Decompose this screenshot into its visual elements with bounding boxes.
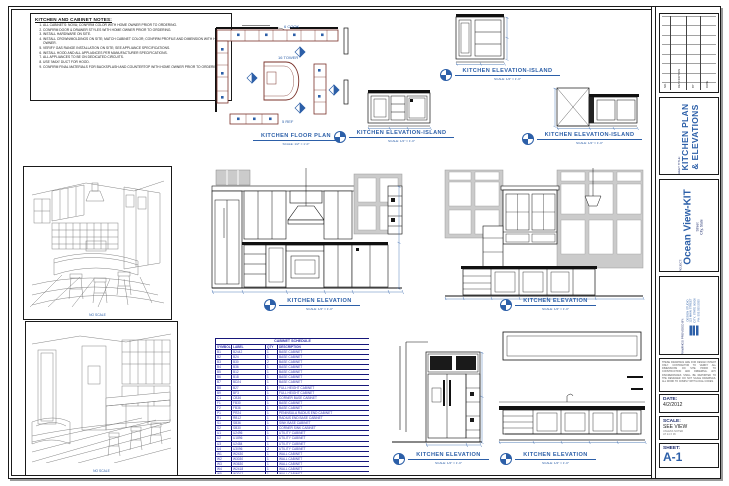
perspective-1-label: NO SCALE: [24, 313, 171, 317]
kitchen-notes-block: KITCHEN AND CABINET NOTES: ALL CABINETS:…: [30, 13, 232, 101]
firm-contact-line: PH: 555.555.5555: [697, 298, 701, 323]
notes-title: KITCHEN AND CABINET NOTES:: [35, 17, 227, 22]
schedule-col-symbol: SYMBOL: [216, 344, 232, 349]
date-value: 4/2/2012: [663, 402, 715, 408]
kitchen-elevation-bot-left-title-text: KITCHEN ELEVATION: [408, 452, 488, 460]
kitchen-floor-plan-drawing: 6 COOK 16 TOWER 5 REF: [212, 12, 372, 130]
island-elevation-right-drawing: [553, 84, 643, 130]
firm-contact-lines: DESIGN STUDIO123 MAIN STREETCITY, STATE …: [686, 298, 701, 323]
section-marker-icon: [393, 453, 405, 465]
note-item: CONFIRM DOOR & DRAWER STYLES WITH HOME O…: [43, 28, 227, 32]
sheet-title-box: SHEET TITLE: KITCHEN PLAN & ELEVATIONS: [659, 97, 719, 175]
kitchen-elevation-mid-left-title-text: KITCHEN ELEVATION: [279, 298, 359, 306]
schedule-body: B1 B2442 1 BASE CABINET B2 B24 1 BASE CA…: [216, 349, 370, 474]
sheet-number-box: SHEET: A-1: [659, 443, 719, 468]
island-elevation-left-title-text: KITCHEN ELEVATION-ISLAND: [349, 130, 455, 138]
scale-box: SCALE: SEE VIEW UNLESS NOTED AT 24 X 36: [659, 416, 719, 440]
plan-label-tower: 16 TOWER: [278, 55, 298, 60]
revision-table: NO.DESCRIPTIONBYDATE: [659, 13, 719, 93]
note-item: ALL CABINETS: NOVA; CONFIRM COLOR WITH H…: [43, 23, 227, 27]
island-elevation-right-title-text: KITCHEN ELEVATION-ISLAND: [537, 132, 643, 140]
kitchen-elevation-mid-left-scale: SCALE: 1/2" = 1'-0": [279, 307, 359, 311]
island-elevation-right-title: KITCHEN ELEVATION-ISLAND SCALE: 1/2" = 1…: [524, 132, 640, 145]
firm-label: DRAWINGS PROVIDED BY:: [680, 318, 684, 355]
cabinet-schedule-table: CABINET SCHEDULE SYMBOL LABEL QTY DESCRI…: [215, 338, 369, 474]
note-item: INSTALL CROWN/MOLDINGS ON SITE; MATCH CA…: [43, 37, 227, 45]
island-elevation-top-drawing: [450, 10, 512, 66]
titleblock-divider: [651, 6, 656, 478]
revision-column-label: DESCRIPTION: [677, 18, 681, 88]
plan-label-cook: 6 COOK: [284, 24, 299, 29]
notes-list: ALL CABINETS: NOVA; CONFIRM COLOR WITH H…: [35, 23, 227, 69]
firm-info-box: DRAWINGS PROVIDED BY: DESIGN STUDIO123 M…: [659, 276, 719, 355]
island-elevation-right-scale: SCALE: 1/2" = 1'-0": [537, 141, 643, 145]
note-item: INSTALL HARDWARE ON SITE.: [43, 32, 227, 36]
revision-headers: NO.DESCRIPTIONBYDATE: [660, 14, 718, 92]
island-elevation-left-drawing: [366, 86, 434, 130]
firm-logo-icon: [689, 325, 698, 335]
project-label: PROJECT:: [678, 258, 682, 272]
perspective-2-label: NO SCALE: [26, 469, 177, 473]
project-name: Ocean View-KIT: [682, 189, 693, 264]
section-marker-icon: [500, 453, 512, 465]
note-item: CONFIRM FINAL MATERIALS FOR BACKSPLASH A…: [43, 65, 227, 69]
kitchen-elevation-bot-right-scale: SCALE: 1/2" = 1'-0": [515, 461, 595, 465]
perspective-view-1: NO SCALE: [23, 166, 172, 320]
plan-label-ref: 5 REF: [282, 119, 294, 124]
schedule-title: CABINET SCHEDULE: [215, 338, 369, 344]
note-item: INSTALL HOOD AND ALL APPLIANCES PER MANU…: [43, 51, 227, 55]
section-marker-icon: [500, 299, 512, 311]
floor-plan-scale: SCALE: 1/2" = 1'-0": [253, 142, 339, 146]
note-item: ALL APPLIANCES TO BE ON DEDICATED CIRCUI…: [43, 55, 227, 59]
project-name-box: PROJECT: Ocean View-KIT Street City, Sta…: [659, 179, 719, 272]
date-box: DATE: 4/2/2012: [659, 394, 719, 413]
scale-note-2: AT 24 X 36: [663, 433, 715, 436]
note-item: VERIFY GAS RANGE INSTALLATION ON SITE; S…: [43, 46, 227, 50]
sheet-title-line2: & ELEVATIONS: [691, 104, 701, 171]
revision-column-label: DATE: [705, 18, 709, 88]
perspective-sketch-1: [28, 171, 167, 307]
disclaimer-box: THESE DRAWINGS ARE FOR DESIGN INTENT ONL…: [659, 358, 719, 392]
kitchen-elevation-mid-left-title: KITCHEN ELEVATION SCALE: 1/2" = 1'-0": [246, 298, 378, 311]
section-marker-icon: [334, 131, 346, 143]
drawing-sheet: KITCHEN AND CABINET NOTES: ALL CABINETS:…: [0, 0, 729, 486]
floor-plan-title-text: KITCHEN FLOOR PLAN: [253, 133, 339, 141]
revision-column-label: NO.: [663, 18, 667, 88]
section-marker-icon: [522, 133, 534, 145]
kitchen-elevation-bot-left-scale: SCALE: 1/2" = 1'-0": [408, 461, 488, 465]
project-street: Street: [695, 222, 699, 231]
island-elevation-left-scale: SCALE: 1/2" = 1'-0": [349, 139, 455, 143]
island-elevation-left-title: KITCHEN ELEVATION-ISLAND SCALE: 1/2" = 1…: [342, 130, 446, 143]
kitchen-elevation-bot-right-drawing: [497, 330, 647, 444]
perspective-view-2: NO SCALE: [25, 321, 178, 476]
island-elevation-top-title: KITCHEN ELEVATION-ISLAND SCALE: 1/2" = 1…: [436, 68, 564, 81]
kitchen-elevation-mid-right-title-text: KITCHEN ELEVATION: [515, 298, 595, 306]
perspective-sketch-2: [30, 326, 173, 463]
project-city: City, State: [699, 219, 703, 234]
island-elevation-top-title-text: KITCHEN ELEVATION-ISLAND: [455, 68, 561, 76]
section-marker-icon: [440, 69, 452, 81]
revision-column-label: BY: [691, 18, 695, 88]
kitchen-elevation-mid-right-drawing: [443, 168, 645, 300]
kitchen-elevation-mid-right-title: KITCHEN ELEVATION SCALE: 1/2" = 1'-0": [484, 298, 612, 311]
schedule-row: W5 W3012 1 WALL CABINET: [216, 472, 370, 474]
kitchen-elevation-bot-right-title: KITCHEN ELEVATION SCALE: 1/2" = 1'-0": [482, 452, 614, 465]
note-item: USE 'MAXI' DUCT FOR HOOD.: [43, 60, 227, 64]
disclaimer-text: THESE DRAWINGS ARE FOR DESIGN INTENT ONL…: [660, 359, 718, 385]
island-elevation-top-scale: SCALE: 1/2" = 1'-0": [455, 77, 561, 81]
section-marker-icon: [264, 299, 276, 311]
kitchen-elevation-mid-right-scale: SCALE: 1/2" = 1'-0": [515, 307, 595, 311]
kitchen-elevation-mid-left-drawing: [210, 168, 404, 296]
kitchen-elevation-bot-right-title-text: KITCHEN ELEVATION: [515, 452, 595, 460]
sheet-number: A-1: [663, 451, 715, 463]
kitchen-elevation-bot-left-drawing: [382, 330, 484, 448]
